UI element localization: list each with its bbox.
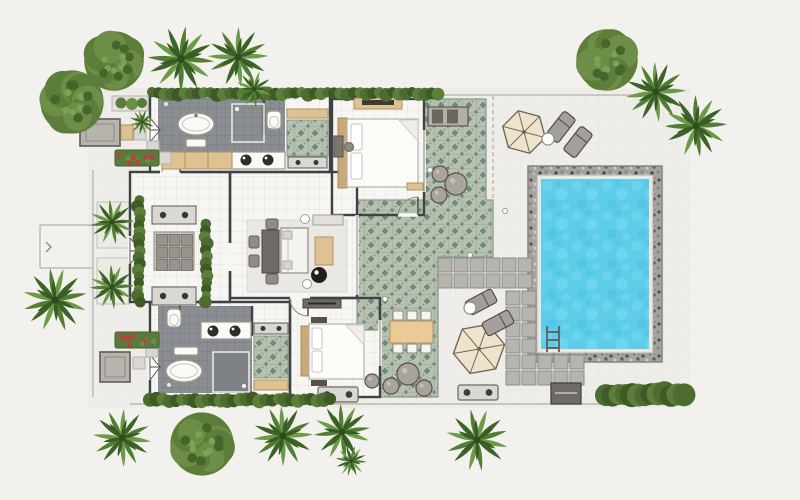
swimming-pool — [528, 166, 662, 362]
sink — [208, 326, 219, 337]
tree-palm — [83, 399, 161, 477]
foyer-bench — [152, 287, 196, 305]
paver — [470, 274, 484, 288]
dressing-shelf — [254, 380, 288, 390]
paver — [522, 355, 536, 369]
coffee-table — [315, 237, 333, 265]
paver — [486, 274, 500, 288]
flowers — [127, 160, 132, 165]
tree-palm — [145, 22, 218, 95]
dressing-bench — [254, 323, 288, 334]
paver — [502, 274, 516, 288]
corner-bench — [311, 380, 327, 386]
chair — [266, 219, 278, 229]
tree-palm — [440, 403, 515, 478]
paver — [506, 291, 520, 305]
paver — [454, 274, 468, 288]
sink — [241, 155, 252, 166]
spotlight — [428, 168, 433, 173]
floor-drain — [164, 102, 168, 106]
pillow — [312, 328, 322, 349]
tree-bushy — [162, 405, 241, 484]
pool-water — [541, 179, 649, 349]
tub-faucet — [194, 114, 197, 117]
floor-plan-canvas — [0, 0, 800, 500]
sink — [230, 326, 241, 337]
shelf — [287, 109, 328, 118]
spotlight — [383, 297, 388, 302]
spotlight — [468, 253, 473, 258]
dressing-room1 — [287, 109, 328, 168]
tree-palm — [197, 16, 280, 99]
floor-drain — [167, 383, 171, 387]
pouf — [365, 374, 379, 388]
paver — [518, 258, 532, 272]
tub-tray — [174, 347, 198, 355]
flowers — [127, 342, 132, 347]
toilet — [267, 111, 281, 129]
tree-palm — [16, 261, 93, 338]
paver — [486, 258, 500, 272]
chair — [249, 236, 259, 248]
paver — [438, 258, 452, 272]
dressing-room2 — [254, 323, 288, 390]
headboard — [301, 326, 309, 376]
flower-planter — [115, 332, 159, 348]
side-table — [464, 302, 476, 314]
fire-bowl — [311, 267, 327, 283]
paver — [454, 258, 468, 272]
tub-tray — [186, 139, 206, 147]
flowers — [151, 339, 156, 344]
paver — [522, 307, 536, 321]
living-room — [247, 215, 347, 293]
paver — [538, 371, 552, 385]
paver — [470, 258, 484, 272]
toilet — [167, 309, 181, 327]
dining-table — [262, 230, 279, 273]
sofa-pillow — [283, 231, 292, 239]
flower-planter — [115, 150, 159, 166]
sink — [263, 155, 274, 166]
paver — [554, 355, 568, 369]
pouf-highlight — [387, 382, 391, 386]
flowers — [139, 341, 144, 346]
closet-cabinet — [162, 152, 232, 169]
flowers — [119, 333, 124, 338]
stepping-stone — [133, 357, 145, 369]
pillow — [351, 153, 362, 179]
spotlight — [503, 209, 508, 214]
hedge — [595, 381, 695, 407]
stool — [345, 143, 354, 152]
flowers — [131, 333, 136, 338]
flowers — [116, 153, 121, 158]
dressing-table — [334, 136, 343, 157]
stepping-stone — [159, 152, 171, 164]
chair — [249, 255, 259, 267]
paver — [538, 355, 552, 369]
paver — [518, 274, 532, 288]
daybed-pillow — [432, 110, 443, 124]
pouf-highlight — [435, 191, 439, 195]
flowers — [125, 156, 130, 161]
pouf-highlight — [450, 178, 456, 184]
corner-bench — [311, 317, 327, 323]
flowers — [144, 154, 149, 159]
bathroom1-tile — [158, 98, 285, 155]
decor — [301, 215, 310, 224]
foyer-bench — [152, 206, 196, 224]
bathtub — [166, 360, 202, 382]
foot-bench — [407, 183, 423, 190]
side-table — [542, 133, 554, 145]
decor — [303, 280, 312, 289]
paver — [506, 355, 520, 369]
paver — [522, 371, 536, 385]
pouf — [397, 363, 419, 385]
paver — [438, 274, 452, 288]
paver — [506, 339, 520, 353]
paver — [570, 355, 584, 369]
pouf-highlight — [402, 368, 408, 374]
flowers — [131, 155, 136, 160]
dressing-rug — [254, 336, 288, 378]
pouf — [445, 173, 467, 195]
pouf-highlight — [420, 384, 424, 388]
pillow — [312, 351, 322, 372]
paver — [522, 339, 536, 353]
flowers — [135, 160, 140, 165]
shower-head — [242, 384, 246, 388]
paver — [506, 371, 520, 385]
outdoor-dining-table — [390, 321, 433, 343]
foyer — [152, 206, 196, 305]
vanity-counter — [232, 152, 285, 169]
pouf — [416, 380, 432, 396]
villa-floor-plan — [0, 0, 800, 500]
shower-head — [235, 107, 239, 111]
flowers — [149, 155, 154, 160]
dressing-rug — [287, 120, 328, 156]
dressing-bench — [288, 157, 327, 168]
pouf — [431, 187, 447, 203]
pouf-highlight — [436, 170, 440, 174]
sofa-pillow — [283, 261, 292, 269]
chair — [266, 274, 278, 284]
entry-gate-mark — [46, 242, 51, 252]
paver — [502, 258, 516, 272]
paver — [522, 291, 536, 305]
pouf — [383, 378, 399, 394]
pouf-highlight — [368, 377, 372, 381]
console — [313, 215, 343, 225]
daybed-pillow — [447, 110, 458, 124]
entry-step — [121, 125, 133, 140]
terrace-bench — [458, 385, 498, 400]
paver — [522, 323, 536, 337]
